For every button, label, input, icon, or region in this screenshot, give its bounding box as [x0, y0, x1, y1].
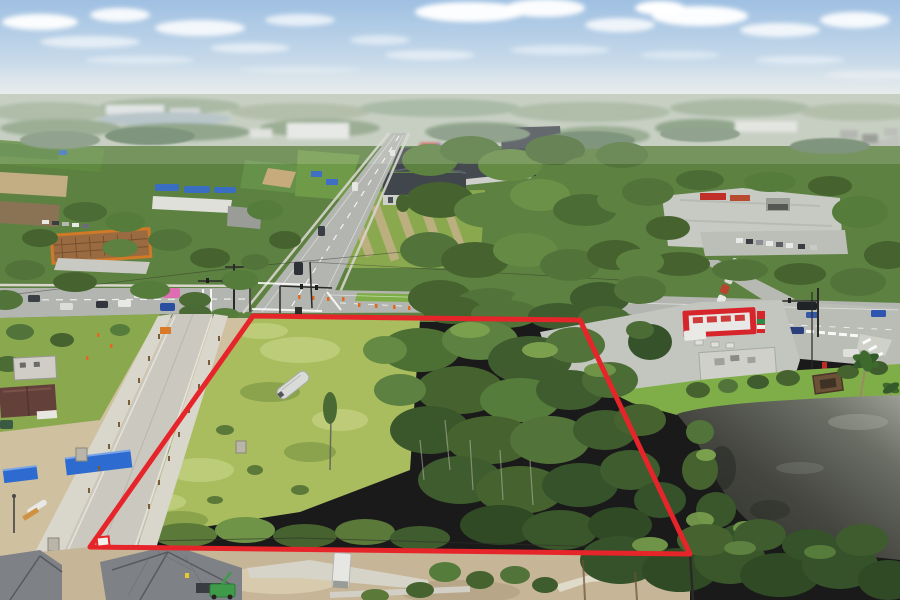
red-bin	[822, 362, 827, 369]
green-vehicle	[0, 420, 13, 429]
orange-machine	[160, 327, 171, 334]
commercial-warehouse	[662, 188, 848, 256]
worker	[185, 573, 189, 578]
atmospheric-haze	[0, 94, 900, 164]
red-truck	[700, 193, 726, 200]
gas-price-sign	[757, 311, 765, 333]
trash-bin	[295, 307, 302, 315]
aerial-photo-stage: Aerial drone photo of a vacant, partly w…	[0, 0, 900, 600]
median-grass	[355, 293, 412, 302]
aerial-photo: Aerial drone photo of a vacant, partly w…	[0, 0, 900, 600]
red-truck	[730, 195, 750, 201]
school-building-2	[0, 201, 60, 227]
white-truck	[684, 329, 707, 341]
box-truck	[332, 552, 351, 588]
white-trailer	[13, 356, 56, 380]
school-building-1	[0, 172, 68, 197]
corner-marker-sign	[97, 536, 110, 546]
black-pickup	[797, 302, 817, 310]
warehouse-parking	[700, 230, 848, 256]
blue-car	[160, 303, 175, 311]
